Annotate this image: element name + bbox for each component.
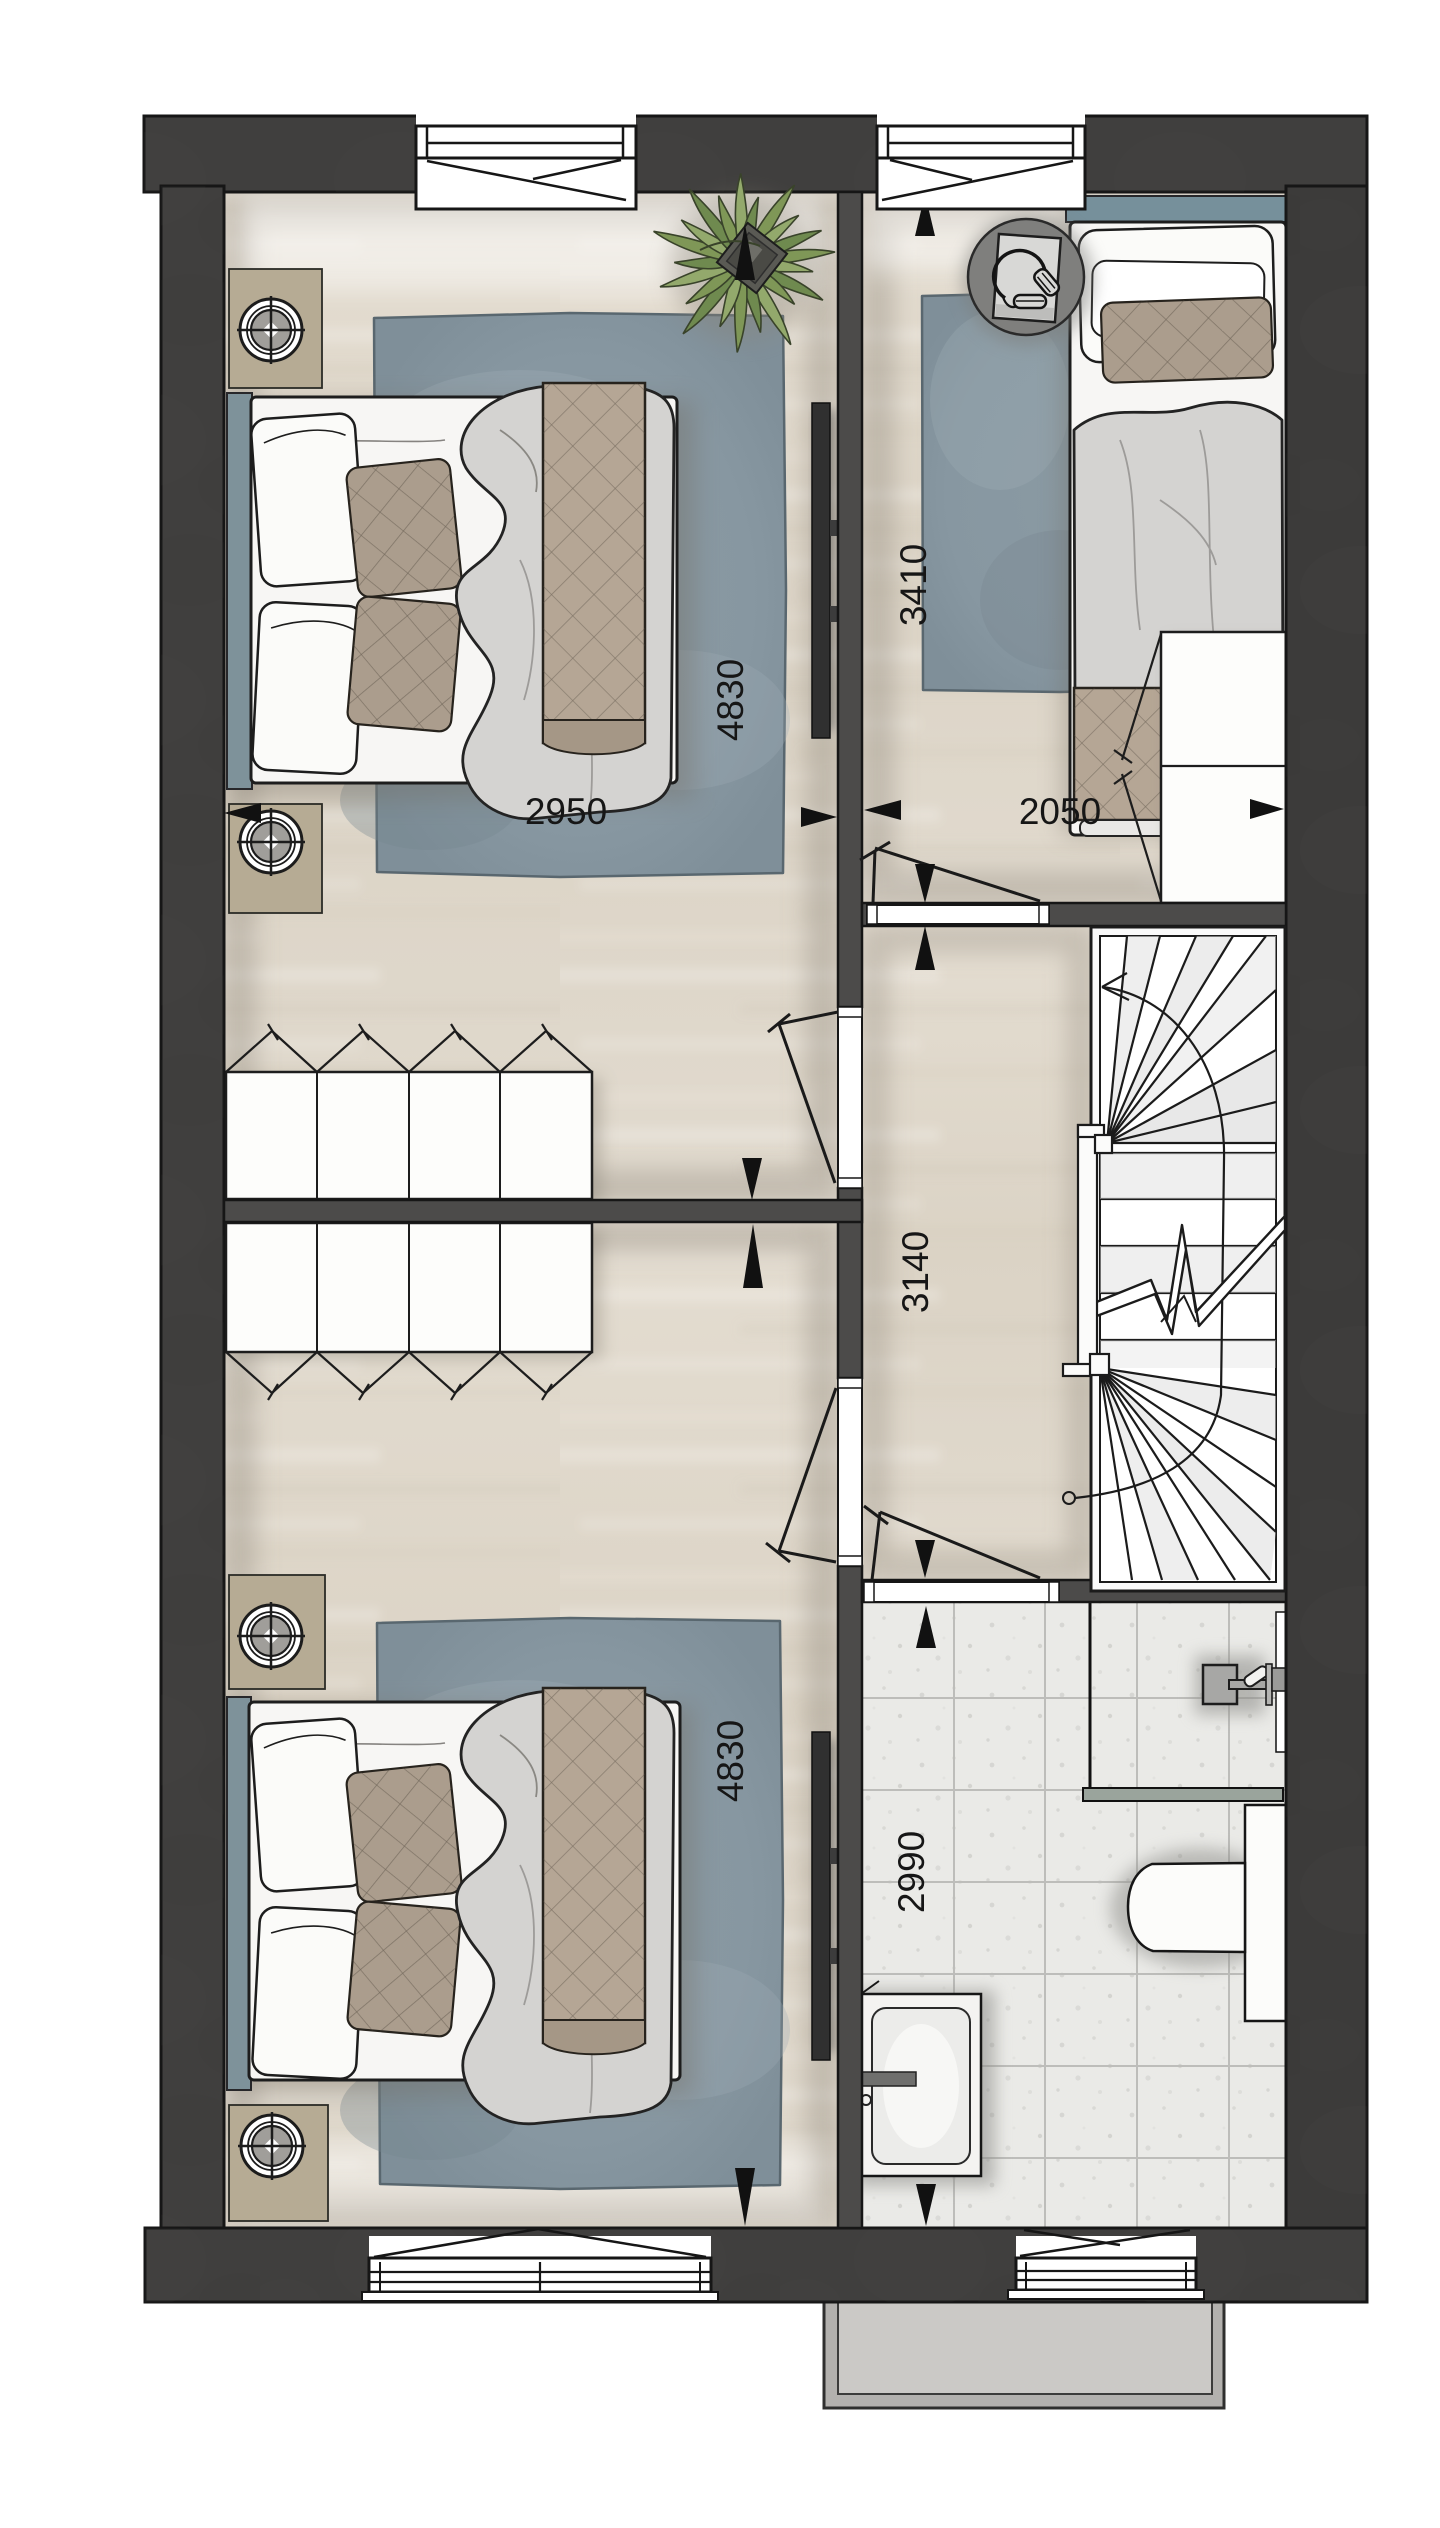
- svg-text:2990: 2990: [891, 1831, 932, 1913]
- svg-text:4830: 4830: [710, 1720, 751, 1802]
- svg-text:3140: 3140: [895, 1231, 936, 1313]
- svg-text:4830: 4830: [710, 659, 751, 741]
- svg-text:2950: 2950: [525, 791, 607, 832]
- svg-text:3410: 3410: [893, 544, 934, 626]
- svg-text:2050: 2050: [1019, 791, 1101, 832]
